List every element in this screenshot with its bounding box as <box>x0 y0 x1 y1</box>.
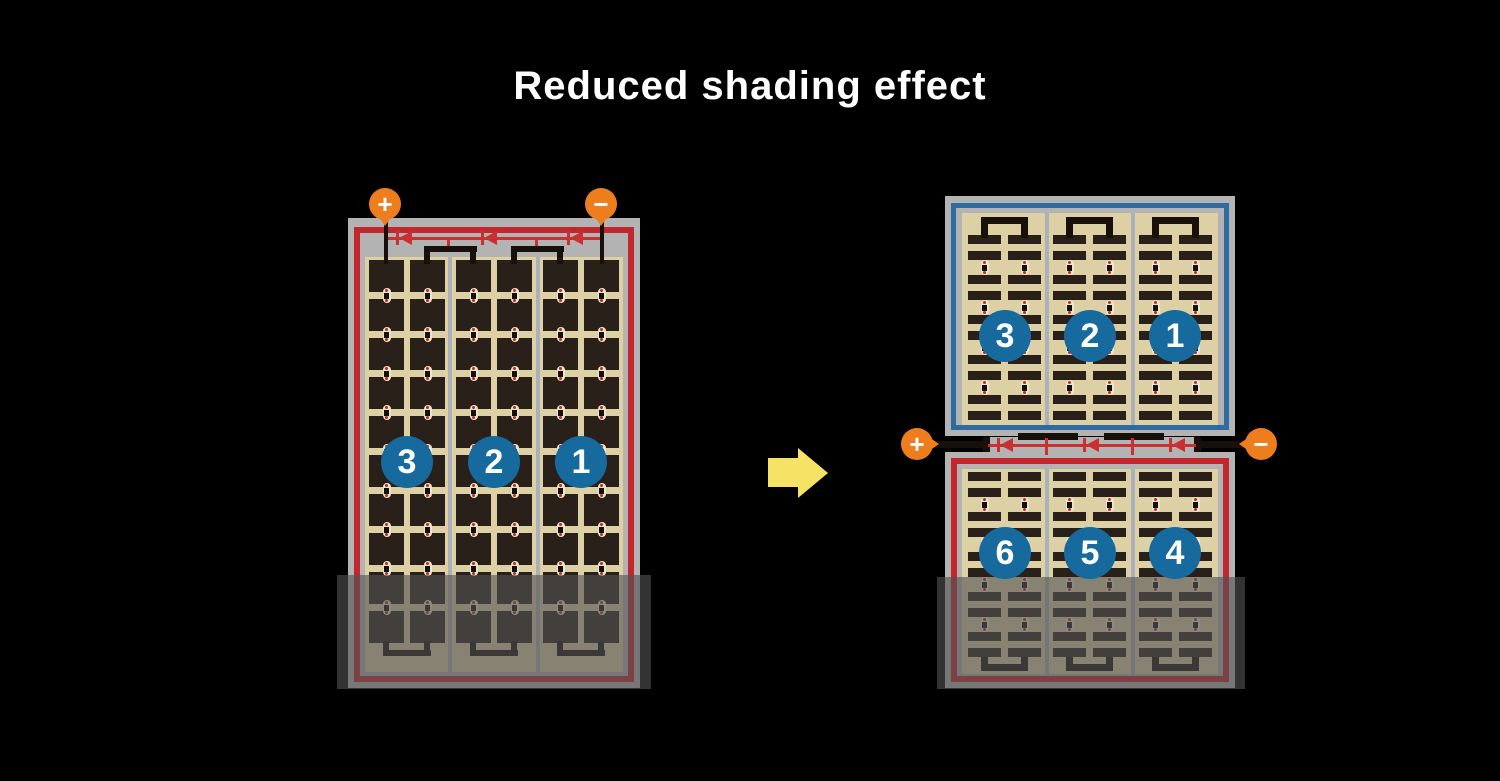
connector-black-pad <box>471 293 476 299</box>
half-cut-cell <box>1053 251 1086 260</box>
cell-connector-dot <box>470 327 478 342</box>
bypass-diode-icon <box>1169 438 1186 452</box>
connector-red-dot <box>1068 311 1071 314</box>
terminal-pin-negative: − <box>585 188 617 220</box>
cell-connector-dot <box>511 561 519 576</box>
terminal-pin-positive: + <box>369 188 401 220</box>
connector-red-dot <box>385 416 388 419</box>
cell-connector-dot <box>424 327 432 342</box>
connector-black-pad <box>471 332 476 338</box>
half-cut-cell <box>1053 488 1086 497</box>
string-number-badge: 1 <box>555 436 607 488</box>
half-cut-cell <box>1179 251 1212 260</box>
half-cut-cell <box>1093 395 1126 404</box>
cell-connector-dot <box>470 405 478 420</box>
cell-connector-dot <box>981 300 989 315</box>
cell-connector-dot <box>383 288 391 303</box>
connector-red-dot <box>1108 311 1111 314</box>
connector-red-dot <box>600 494 603 497</box>
cell-connector-dot <box>557 405 565 420</box>
half-cut-cell <box>968 395 1001 404</box>
connector-black-pad <box>599 566 604 572</box>
connector-black-pad <box>384 488 389 494</box>
half-cut-cell <box>1139 488 1172 497</box>
half-cut-cell <box>1093 472 1126 481</box>
cell-connector-dot <box>557 288 565 303</box>
connector-black-pad <box>1193 305 1198 311</box>
connector-black-pad <box>599 488 604 494</box>
cell-connector-dot <box>1021 260 1029 275</box>
connector-red-dot <box>472 416 475 419</box>
connector-red-dot <box>559 494 562 497</box>
string-number-badge: 5 <box>1064 527 1116 579</box>
bridge-leg <box>1066 224 1073 238</box>
cell-connector-dot <box>981 380 989 395</box>
half-cut-cell <box>1008 488 1041 497</box>
connector-black-pad <box>1193 385 1198 391</box>
connector-black-pad <box>1022 385 1027 391</box>
cell-connector-dot <box>1106 300 1114 315</box>
cell-connector-dot <box>383 327 391 342</box>
connector-red-dot <box>472 377 475 380</box>
connector-red-dot <box>1108 391 1111 394</box>
connector-red-dot <box>983 391 986 394</box>
shade-overlay <box>337 575 651 689</box>
connector-black-pad <box>384 566 389 572</box>
cell-connector-dot <box>383 522 391 537</box>
cell-connector-dot <box>598 405 606 420</box>
transform-arrow-head <box>798 448 828 498</box>
connector-black-pad <box>1107 265 1112 271</box>
cell-connector-dot <box>598 288 606 303</box>
connector-red-dot <box>1108 508 1111 511</box>
cell-connector-dot <box>1066 300 1074 315</box>
connector-red-dot <box>1023 311 1026 314</box>
terminal-wire <box>935 441 990 448</box>
connector-black-pad <box>558 293 563 299</box>
cell-connector-dot <box>383 405 391 420</box>
connector-black-pad <box>599 527 604 533</box>
half-cut-cell <box>1008 291 1041 300</box>
connector-black-pad <box>425 410 430 416</box>
connector-black-pad <box>512 527 517 533</box>
diode-triangle <box>570 231 583 245</box>
cell-connector-dot <box>1021 380 1029 395</box>
connector-red-dot <box>1154 311 1157 314</box>
connector-black-pad <box>512 410 517 416</box>
cell-connector-dot <box>1152 497 1160 512</box>
connector-red-dot <box>513 416 516 419</box>
connector-red-dot <box>1154 271 1157 274</box>
string-number-badge: 4 <box>1149 527 1201 579</box>
connector-red-dot <box>600 533 603 536</box>
terminal-pin-positive: + <box>901 428 933 460</box>
terminal-wire <box>600 220 604 264</box>
bypass-diode-icon <box>567 231 584 245</box>
cell-connector-dot <box>424 561 432 576</box>
shade-overlay <box>937 577 1245 689</box>
connector-red-dot <box>1194 311 1197 314</box>
connector-red-dot <box>559 338 562 341</box>
connector-black-pad <box>425 566 430 572</box>
connector-black-pad <box>599 371 604 377</box>
cell-connector-dot <box>1021 497 1029 512</box>
connector-red-dot <box>1023 391 1026 394</box>
half-cut-cell <box>968 371 1001 380</box>
connector-black-pad <box>558 566 563 572</box>
half-cut-cell <box>1139 275 1172 284</box>
half-cut-cell <box>968 275 1001 284</box>
diode-triangle <box>399 231 412 245</box>
connector-black-pad <box>1067 305 1072 311</box>
connector-black-pad <box>982 502 987 508</box>
cell-connector-dot <box>981 497 989 512</box>
cell-connector-dot <box>470 561 478 576</box>
string-number-badge: 6 <box>979 527 1031 579</box>
cell-connector-dot <box>511 327 519 342</box>
connector-black-pad <box>1153 305 1158 311</box>
connector-black-pad <box>1107 305 1112 311</box>
junction-black-bar <box>1018 433 1078 440</box>
connector-red-dot <box>559 377 562 380</box>
half-cut-cell <box>1093 291 1126 300</box>
shading-effect-infographic: Reduced shading effect 321+−321654+− <box>0 0 1500 781</box>
half-cut-cell <box>1139 291 1172 300</box>
half-cut-cell <box>1093 251 1126 260</box>
half-cut-cell <box>1008 411 1041 420</box>
connector-black-pad <box>1153 265 1158 271</box>
half-cut-cell <box>1008 472 1041 481</box>
cell-connector-dot <box>598 366 606 381</box>
half-cut-cell <box>1093 275 1126 284</box>
bridge-leg <box>1152 224 1159 238</box>
bridge-leg <box>1192 224 1199 238</box>
connector-black-pad <box>599 332 604 338</box>
cell-connector-dot <box>424 405 432 420</box>
half-cut-cell <box>968 251 1001 260</box>
cell-connector-dot <box>470 288 478 303</box>
connector-red-dot <box>513 338 516 341</box>
terminal-symbol: + <box>377 191 392 217</box>
connector-black-pad <box>384 410 389 416</box>
cell-connector-dot <box>598 483 606 498</box>
connector-red-dot <box>426 299 429 302</box>
connector-black-pad <box>384 332 389 338</box>
cell-connector-dot <box>1066 260 1074 275</box>
cell-connector-dot <box>511 483 519 498</box>
connector-red-dot <box>1023 271 1026 274</box>
cell-connector-dot <box>1106 497 1114 512</box>
half-cut-cell <box>1179 395 1212 404</box>
connector-red-dot <box>559 299 562 302</box>
connector-black-pad <box>599 293 604 299</box>
connector-black-pad <box>425 371 430 377</box>
terminal-pin-negative: − <box>1245 428 1277 460</box>
connector-black-pad <box>982 385 987 391</box>
connector-black-pad <box>982 265 987 271</box>
cell-connector-dot <box>1066 380 1074 395</box>
connector-black-pad <box>982 305 987 311</box>
connector-black-pad <box>425 527 430 533</box>
string-bridge-top <box>981 217 1028 224</box>
cell-connector-dot <box>557 483 565 498</box>
cell-connector-dot <box>1106 260 1114 275</box>
connector-red-dot <box>513 533 516 536</box>
connector-red-dot <box>600 416 603 419</box>
connector-black-pad <box>384 293 389 299</box>
string-number-badge: 1 <box>1149 310 1201 362</box>
connector-red-dot <box>600 377 603 380</box>
bypass-diode-icon <box>396 231 413 245</box>
connector-red-dot <box>385 533 388 536</box>
terminal-symbol: + <box>909 431 924 457</box>
string-number-badge: 2 <box>1064 310 1116 362</box>
diode-triangle <box>1000 438 1013 452</box>
connector-black-pad <box>425 293 430 299</box>
connector-red-dot <box>513 299 516 302</box>
cell-connector-dot <box>557 366 565 381</box>
connector-red-dot <box>1194 271 1197 274</box>
half-cut-cell <box>1008 275 1041 284</box>
connector-red-dot <box>600 338 603 341</box>
cell-connector-dot <box>424 483 432 498</box>
cell-connector-dot <box>383 483 391 498</box>
connector-red-dot <box>1108 271 1111 274</box>
connector-black-pad <box>1193 502 1198 508</box>
connector-black-pad <box>1067 385 1072 391</box>
half-cut-cell <box>968 291 1001 300</box>
terminal-pin-tip <box>378 216 392 226</box>
connector-black-pad <box>1022 305 1027 311</box>
string-number-badge: 3 <box>381 436 433 488</box>
connector-black-pad <box>558 410 563 416</box>
connector-black-pad <box>558 527 563 533</box>
connector-black-pad <box>1022 502 1027 508</box>
half-cut-cell <box>1053 512 1086 521</box>
cell-connector-dot <box>1106 380 1114 395</box>
connector-black-pad <box>425 332 430 338</box>
bridge-leg <box>470 252 476 264</box>
connector-red-dot <box>472 299 475 302</box>
connector-red-dot <box>1154 508 1157 511</box>
connector-red-dot <box>426 416 429 419</box>
connector-red-dot <box>426 494 429 497</box>
bridge-leg <box>557 252 563 264</box>
connector-red-dot <box>513 494 516 497</box>
connector-red-dot <box>983 311 986 314</box>
cell-connector-dot <box>424 288 432 303</box>
terminal-symbol: − <box>593 191 608 217</box>
cell-connector-dot <box>424 522 432 537</box>
connector-black-pad <box>471 371 476 377</box>
connector-black-pad <box>384 371 389 377</box>
connector-black-pad <box>1067 265 1072 271</box>
half-cut-cell <box>1179 275 1212 284</box>
connector-red-dot <box>1068 391 1071 394</box>
connector-red-dot <box>983 508 986 511</box>
cell-connector-dot <box>557 522 565 537</box>
connector-red-dot <box>1023 508 1026 511</box>
cell-connector-dot <box>1152 300 1160 315</box>
connector-black-pad <box>471 566 476 572</box>
cell-connector-dot <box>1192 380 1200 395</box>
connector-black-pad <box>1107 502 1112 508</box>
bridge-leg <box>1021 224 1028 238</box>
connector-black-pad <box>512 293 517 299</box>
half-cut-cell <box>968 512 1001 521</box>
connector-black-pad <box>558 332 563 338</box>
half-cut-cell <box>1139 251 1172 260</box>
connector-red-dot <box>426 338 429 341</box>
half-cut-cell <box>1139 472 1172 481</box>
connector-black-pad <box>1153 502 1158 508</box>
half-cut-cell <box>1053 275 1086 284</box>
cell-connector-dot <box>1066 497 1074 512</box>
half-cut-cell <box>1093 371 1126 380</box>
cell-connector-dot <box>1152 260 1160 275</box>
diode-triangle <box>484 231 497 245</box>
half-cut-cell <box>1053 472 1086 481</box>
half-cut-cell <box>1053 395 1086 404</box>
terminal-pin-tip <box>1239 437 1249 451</box>
connector-black-pad <box>471 488 476 494</box>
half-cut-cell <box>1008 371 1041 380</box>
half-cut-cell <box>968 411 1001 420</box>
cell-connector-dot <box>383 561 391 576</box>
connector-black-pad <box>384 527 389 533</box>
junction-black-bar <box>1104 433 1164 440</box>
connector-red-dot <box>385 299 388 302</box>
terminal-pin-tip <box>929 437 939 451</box>
cell-connector-dot <box>424 366 432 381</box>
connector-black-pad <box>599 410 604 416</box>
half-cut-cell <box>1093 488 1126 497</box>
cell-connector-dot <box>511 366 519 381</box>
connector-black-pad <box>512 488 517 494</box>
half-cut-cell <box>1139 371 1172 380</box>
cell-connector-dot <box>557 327 565 342</box>
cell-connector-dot <box>511 405 519 420</box>
connector-red-dot <box>385 377 388 380</box>
connector-black-pad <box>512 332 517 338</box>
bridge-leg <box>511 252 517 264</box>
connector-red-dot <box>559 533 562 536</box>
diode-triangle <box>1086 438 1099 452</box>
cell-connector-dot <box>598 561 606 576</box>
connector-red-dot <box>1068 271 1071 274</box>
half-cut-cell <box>1053 291 1086 300</box>
connector-red-dot <box>385 494 388 497</box>
half-cut-cell <box>1008 251 1041 260</box>
cell-connector-dot <box>511 288 519 303</box>
half-cut-cell <box>1179 291 1212 300</box>
half-cut-cell <box>1053 371 1086 380</box>
half-cut-cell <box>1179 488 1212 497</box>
bypass-diode-icon <box>1083 438 1100 452</box>
connector-red-dot <box>426 377 429 380</box>
cell-connector-dot <box>511 522 519 537</box>
bridge-leg <box>981 224 988 238</box>
connector-red-dot <box>1154 391 1157 394</box>
half-cut-cell <box>968 488 1001 497</box>
cell-connector-dot <box>1192 260 1200 275</box>
cell-connector-dot <box>1152 380 1160 395</box>
string-bridge-top <box>1066 217 1113 224</box>
connector-black-pad <box>1153 385 1158 391</box>
terminal-symbol: − <box>1253 431 1268 457</box>
string-number-badge: 3 <box>979 310 1031 362</box>
connector-red-dot <box>385 338 388 341</box>
half-cut-cell <box>1053 411 1086 420</box>
half-cut-cell <box>1093 411 1126 420</box>
connector-black-pad <box>558 488 563 494</box>
half-cut-cell <box>1179 512 1212 521</box>
bus-stub <box>1045 438 1048 455</box>
connector-black-pad <box>471 527 476 533</box>
connector-red-dot <box>513 377 516 380</box>
connector-red-dot <box>472 533 475 536</box>
connector-black-pad <box>1107 385 1112 391</box>
connector-black-pad <box>1193 265 1198 271</box>
bypass-diode-icon <box>481 231 498 245</box>
cell-connector-dot <box>470 483 478 498</box>
connector-black-pad <box>512 566 517 572</box>
connector-red-dot <box>472 338 475 341</box>
half-cut-cell <box>1179 472 1212 481</box>
terminal-wire <box>384 220 388 264</box>
connector-red-dot <box>472 494 475 497</box>
cell-connector-dot <box>598 327 606 342</box>
cell-connector-dot <box>981 260 989 275</box>
transform-arrow-shaft <box>768 458 798 487</box>
cell-connector-dot <box>557 561 565 576</box>
half-cut-cell <box>1179 411 1212 420</box>
connector-black-pad <box>425 488 430 494</box>
half-cut-cell <box>1008 512 1041 521</box>
string-bridge-top <box>1152 217 1199 224</box>
cell-connector-dot <box>1021 300 1029 315</box>
terminal-pin-tip <box>594 216 608 226</box>
connector-black-pad <box>558 371 563 377</box>
half-cut-cell <box>1139 395 1172 404</box>
bridge-leg <box>424 252 430 264</box>
connector-red-dot <box>1194 508 1197 511</box>
connector-black-pad <box>471 410 476 416</box>
bus-stub <box>1131 438 1134 455</box>
half-cut-cell <box>1139 411 1172 420</box>
connector-black-pad <box>512 371 517 377</box>
diode-triangle <box>1172 438 1185 452</box>
half-cut-cell <box>968 472 1001 481</box>
connector-black-pad <box>1022 265 1027 271</box>
cell-connector-dot <box>1192 300 1200 315</box>
cell-connector-dot <box>470 366 478 381</box>
cell-connector-dot <box>470 522 478 537</box>
connector-red-dot <box>1194 391 1197 394</box>
bridge-leg <box>1106 224 1113 238</box>
connector-red-dot <box>600 299 603 302</box>
diagram-layer: 321+−321654+− <box>0 0 1500 781</box>
half-cut-cell <box>1179 371 1212 380</box>
half-cut-cell <box>1008 395 1041 404</box>
cell-connector-dot <box>598 522 606 537</box>
half-cut-cell <box>1139 512 1172 521</box>
half-cut-cell <box>1093 512 1126 521</box>
connector-black-pad <box>1067 502 1072 508</box>
connector-red-dot <box>1068 508 1071 511</box>
cell-connector-dot <box>1192 497 1200 512</box>
connector-red-dot <box>426 533 429 536</box>
